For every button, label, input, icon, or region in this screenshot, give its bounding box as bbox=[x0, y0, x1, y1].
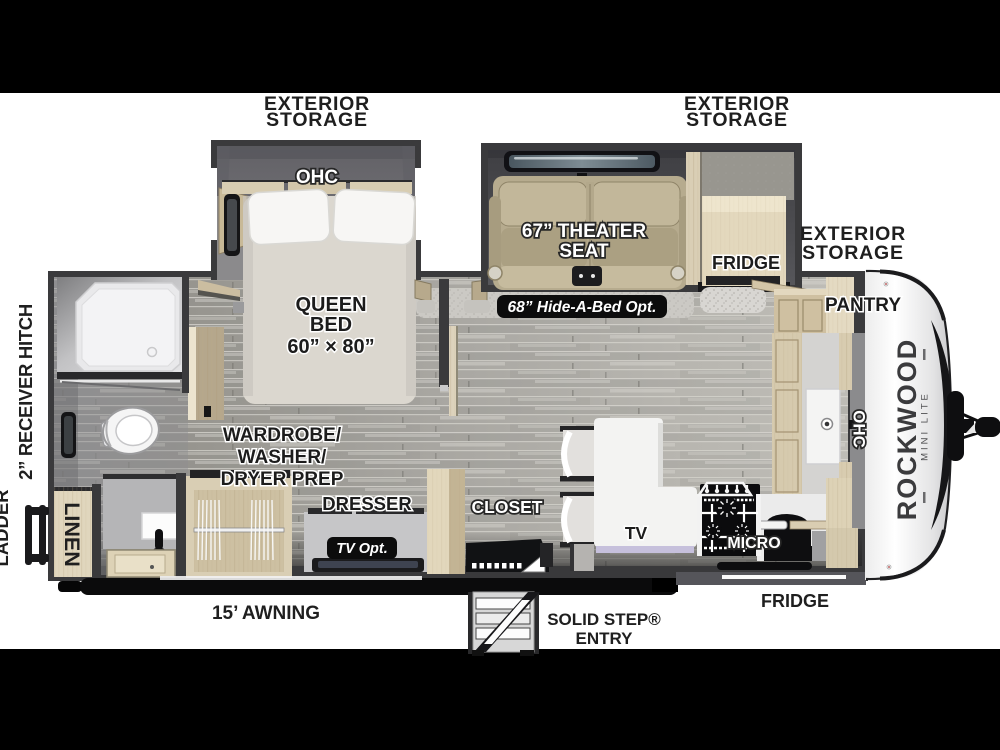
svg-text:FRIDGE: FRIDGE bbox=[712, 253, 780, 273]
svg-text:MICRO: MICRO bbox=[727, 535, 780, 552]
svg-text:MINI LITE: MINI LITE bbox=[920, 391, 931, 461]
svg-text:2” RECEIVER HITCH: 2” RECEIVER HITCH bbox=[15, 304, 36, 480]
svg-text:LADDER: LADDER bbox=[0, 489, 12, 566]
svg-text:SOLID STEP®: SOLID STEP® bbox=[547, 610, 661, 629]
svg-text:15’ AWNING: 15’ AWNING bbox=[212, 603, 320, 624]
svg-text:67” THEATER: 67” THEATER bbox=[522, 221, 647, 242]
svg-text:PANTRY: PANTRY bbox=[825, 295, 901, 316]
svg-text:DRYER PREP: DRYER PREP bbox=[221, 469, 344, 490]
svg-text:WASHER/: WASHER/ bbox=[238, 447, 327, 468]
svg-text:BED: BED bbox=[310, 314, 352, 336]
svg-text:OHC: OHC bbox=[296, 167, 339, 188]
svg-text:60” × 80”: 60” × 80” bbox=[287, 336, 374, 358]
svg-text:SEAT: SEAT bbox=[559, 241, 609, 262]
svg-text:OHC: OHC bbox=[850, 410, 869, 448]
svg-text:STORAGE: STORAGE bbox=[686, 109, 788, 131]
svg-text:DRESSER: DRESSER bbox=[322, 493, 411, 514]
svg-text:QUEEN: QUEEN bbox=[295, 294, 366, 316]
svg-text:STORAGE: STORAGE bbox=[266, 109, 368, 131]
svg-text:WARDROBE/: WARDROBE/ bbox=[223, 425, 342, 446]
svg-text:CLOSET: CLOSET bbox=[472, 497, 543, 517]
svg-text:TV Opt.: TV Opt. bbox=[336, 541, 388, 557]
svg-text:LINEN: LINEN bbox=[60, 502, 84, 567]
svg-text:ROCKWOOD: ROCKWOOD bbox=[892, 338, 922, 520]
svg-text:FRIDGE: FRIDGE bbox=[761, 591, 829, 611]
svg-text:ENTRY: ENTRY bbox=[576, 629, 634, 648]
svg-text:STORAGE: STORAGE bbox=[802, 242, 904, 264]
svg-text:68” Hide-A-Bed Opt.: 68” Hide-A-Bed Opt. bbox=[508, 299, 657, 316]
svg-text:TV: TV bbox=[625, 523, 648, 543]
